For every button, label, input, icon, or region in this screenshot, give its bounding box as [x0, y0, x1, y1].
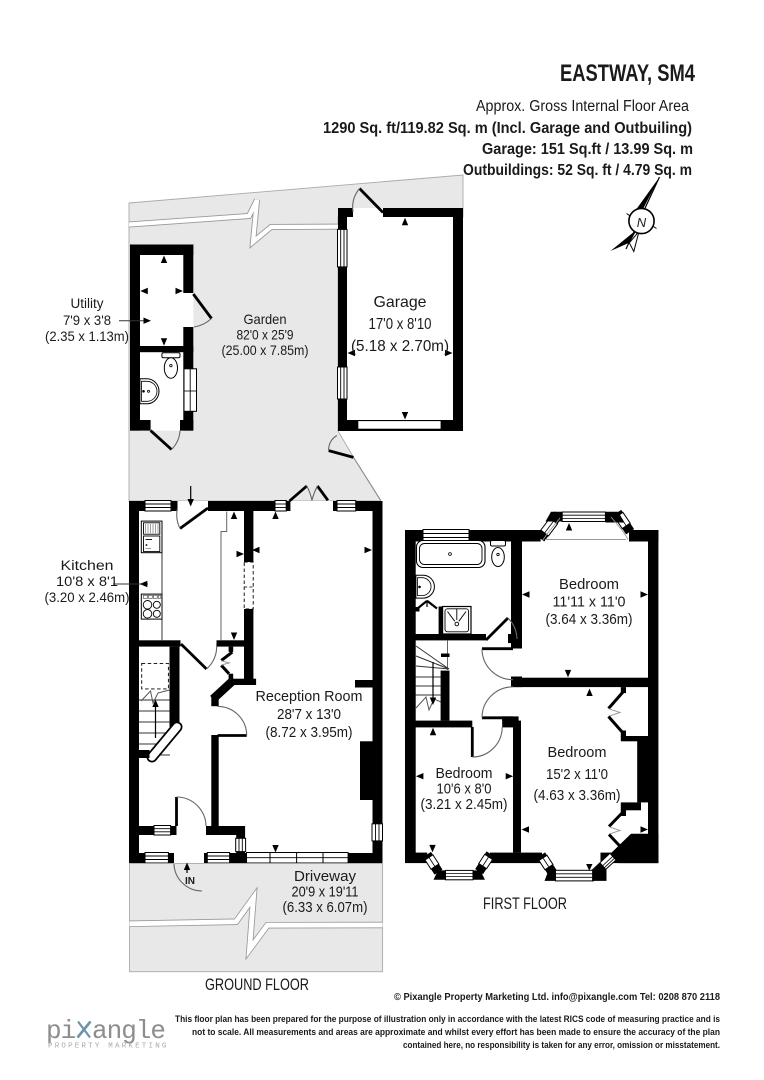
svg-text:Bedroom: Bedroom — [559, 576, 619, 593]
svg-text:not to scale. All measurements: not to scale. All measurements and areas… — [192, 1027, 720, 1037]
svg-text:Kitchen: Kitchen — [61, 558, 114, 573]
svg-text:contained here, no responsibil: contained here, no responsibility is tak… — [403, 1040, 720, 1050]
svg-text:EASTWAY, SM4: EASTWAY, SM4 — [560, 60, 695, 87]
svg-text:Garage: Garage — [374, 294, 427, 311]
svg-text:(4.63 x 3.36m): (4.63 x 3.36m) — [534, 787, 621, 804]
svg-text:pi: pi — [46, 1016, 76, 1046]
svg-text:(8.72 x 3.95m): (8.72 x 3.95m) — [266, 724, 353, 741]
svg-text:20'9 x 19'11: 20'9 x 19'11 — [292, 884, 359, 901]
svg-text:Approx. Gross Internal Floor A: Approx. Gross Internal Floor Area — [476, 98, 689, 115]
svg-text:17'0 x 8'10: 17'0 x 8'10 — [369, 316, 432, 333]
svg-text:Driveway: Driveway — [294, 868, 356, 885]
svg-text:(3.64 x 3.36m): (3.64 x 3.36m) — [546, 611, 633, 628]
svg-text:Outbuildings: 52 Sq. ft / 4.79: Outbuildings: 52 Sq. ft / 4.79 Sq. m — [463, 162, 692, 179]
svg-text:Garage: 151 Sq.ft / 13.99 Sq.: Garage: 151 Sq.ft / 13.99 Sq. m — [482, 141, 693, 158]
svg-text:This floor plan has been prepa: This floor plan has been prepared for th… — [175, 1014, 720, 1024]
svg-text:7'9 x 3'8: 7'9 x 3'8 — [63, 313, 111, 328]
svg-text:11'11 x 11'0: 11'11 x 11'0 — [553, 594, 626, 611]
svg-text:GROUND FLOOR: GROUND FLOOR — [205, 976, 309, 994]
svg-text:N: N — [637, 215, 647, 230]
svg-text:1290 Sq. ft/119.82 Sq. m (Incl: 1290 Sq. ft/119.82 Sq. m (Incl. Garage a… — [323, 120, 692, 137]
svg-text:IN: IN — [185, 876, 195, 887]
svg-text:Reception Room: Reception Room — [256, 688, 363, 705]
svg-text:Bedroom: Bedroom — [436, 765, 493, 782]
svg-text:10'8 x 8'1: 10'8 x 8'1 — [56, 574, 118, 589]
svg-text:Bedroom: Bedroom — [548, 744, 607, 761]
svg-text:10'6 x 8'0: 10'6 x 8'0 — [437, 781, 492, 798]
svg-text:(3.20 x 2.46m): (3.20 x 2.46m) — [45, 590, 130, 605]
svg-text:© Pixangle Property Marketing: © Pixangle Property Marketing Ltd. info@… — [394, 992, 720, 1003]
svg-text:(25.00 x 7.85m): (25.00 x 7.85m) — [222, 342, 309, 358]
svg-text:(5.18 x 2.70m): (5.18 x 2.70m) — [351, 338, 449, 355]
svg-text:Utility: Utility — [71, 296, 104, 311]
svg-text:(2.35 x 1.13m): (2.35 x 1.13m) — [45, 329, 129, 344]
svg-text:(6.33 x 6.07m): (6.33 x 6.07m) — [283, 899, 368, 916]
svg-text:angle: angle — [92, 1016, 165, 1046]
svg-text:FIRST FLOOR: FIRST FLOOR — [483, 895, 567, 913]
svg-text:15'2 x 11'0: 15'2 x 11'0 — [546, 766, 608, 783]
svg-text:28'7 x 13'0: 28'7 x 13'0 — [277, 706, 341, 723]
svg-text:(3.21 x 2.45m): (3.21 x 2.45m) — [421, 796, 508, 813]
svg-text:82'0 x 25'9: 82'0 x 25'9 — [237, 327, 294, 343]
svg-text:Garden: Garden — [244, 311, 287, 327]
svg-text:PROPERTY MARKETING: PROPERTY MARKETING — [48, 1043, 169, 1051]
